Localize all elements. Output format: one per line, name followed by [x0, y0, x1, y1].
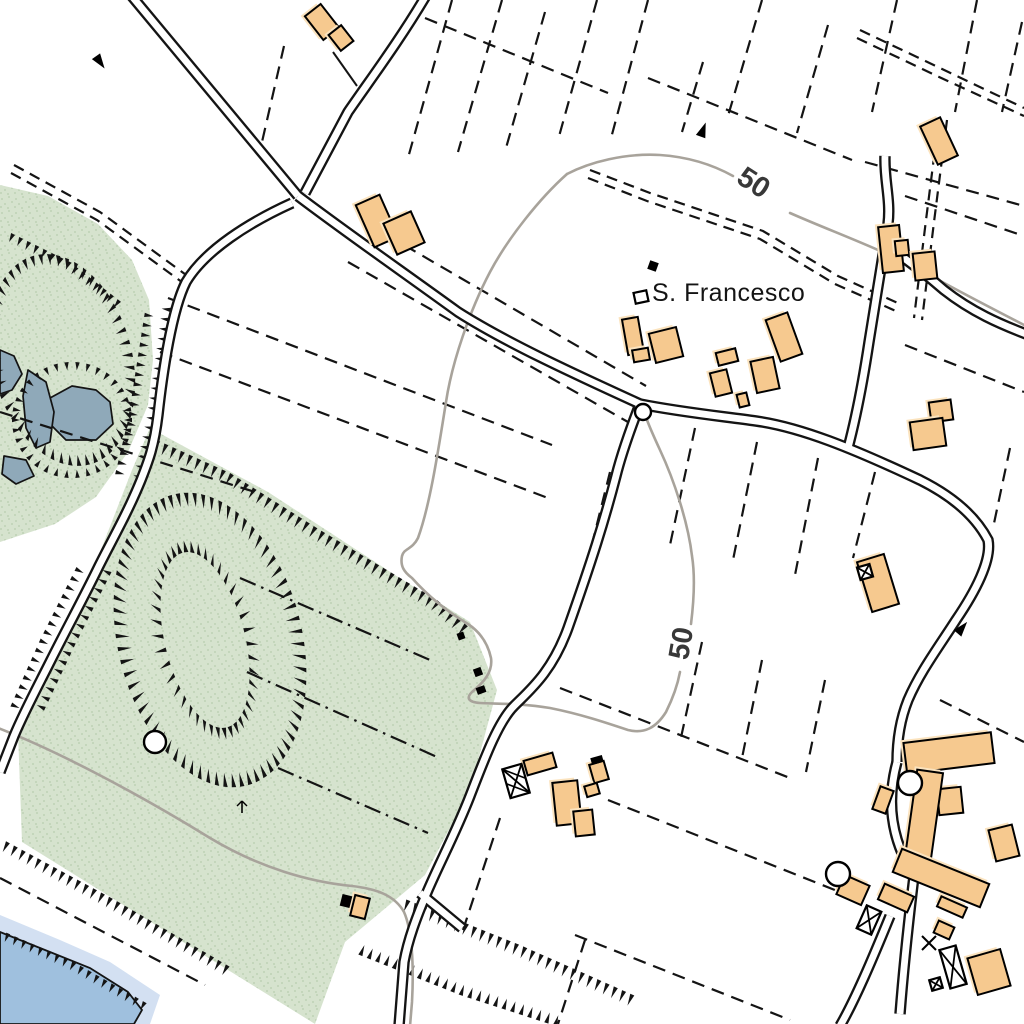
scarp-tick — [61, 594, 70, 600]
scarp-tick — [48, 621, 57, 627]
parcel-boundary-dashed — [993, 448, 1010, 528]
scarp-tick — [191, 946, 198, 957]
scarp-tick — [75, 567, 84, 573]
parcel-boundary-dashed — [733, 442, 757, 560]
parcel-boundary-dashed — [425, 18, 608, 93]
parcel-boundary-dashed — [262, 46, 284, 142]
building-footprint — [524, 753, 557, 776]
scarp-tick — [117, 460, 126, 464]
building-footprint — [584, 783, 600, 797]
scarp-tick — [425, 972, 431, 983]
scarp-tick — [586, 976, 593, 988]
circular-structure-symbol — [826, 862, 850, 886]
scarp-tick — [52, 612, 61, 618]
scarp-tick — [619, 990, 626, 1002]
topo-map-canvas — [0, 0, 1024, 1024]
scarp-tick — [367, 948, 373, 959]
scarp-tick — [504, 940, 510, 952]
scarp-tick — [476, 990, 481, 1001]
scarp-tick — [113, 901, 120, 912]
road-surface — [640, 404, 989, 762]
scarp-tick — [39, 638, 48, 644]
building-footprint — [913, 251, 938, 280]
scarp-tick — [627, 994, 634, 1006]
parcel-boundary-dashed — [905, 196, 1024, 236]
building-footprint — [573, 810, 595, 837]
scarp-tick — [520, 946, 527, 958]
scarp-tick — [57, 603, 66, 609]
scarp-tick — [479, 930, 485, 942]
scarp-tick — [519, 1004, 524, 1015]
fence-line — [333, 52, 357, 86]
scarp-tick — [19, 684, 28, 690]
scarp-tick — [121, 906, 128, 917]
building-footprint — [632, 348, 650, 363]
parcel-boundary-dashed — [463, 818, 500, 930]
scarp-tick — [545, 957, 552, 969]
scarp-tick — [35, 648, 44, 654]
scarp-tick — [168, 933, 175, 944]
circular-structure-symbol — [144, 731, 166, 753]
scarp-tick — [115, 470, 124, 474]
scarp-tick — [450, 982, 456, 993]
scarp-tick — [496, 936, 502, 948]
parcel-boundary-dashed — [742, 660, 762, 758]
building-footprint — [920, 117, 958, 164]
scarp-tick — [603, 983, 610, 995]
scarp-tick — [553, 961, 560, 973]
scarp-tick — [15, 693, 24, 699]
scarp-tick — [58, 871, 65, 882]
circular-structure-symbol — [635, 404, 651, 420]
scarp-tick — [611, 986, 618, 998]
parcel-boundary-dashed — [955, 0, 977, 112]
unpaved-track-line — [590, 170, 900, 304]
scarp-tick — [417, 968, 423, 979]
parcel-boundary-dashed — [558, 940, 585, 1024]
scarp-tick — [487, 933, 493, 945]
unpaved-track-line — [857, 38, 1024, 116]
scarp-tick — [74, 880, 81, 891]
scarp-tick — [493, 996, 498, 1007]
scarp-tick — [50, 867, 57, 878]
building-footprint — [737, 392, 750, 407]
parcel-boundary-dashed — [905, 345, 1024, 392]
building-footprint — [895, 240, 909, 256]
flow-direction-arrow-icon — [696, 121, 711, 139]
scarp-tick — [467, 988, 472, 999]
parcel-boundary-dashed — [610, 0, 648, 142]
scarp-tick — [11, 845, 18, 856]
parcel-boundary-dashed — [348, 262, 628, 422]
scarp-tick — [90, 888, 97, 899]
scarp-tick — [404, 900, 410, 912]
scarp-tick — [537, 954, 544, 966]
flow-direction-arrow-icon — [92, 53, 109, 71]
scarp-tick — [434, 975, 440, 986]
scarp-tick — [392, 958, 398, 969]
scarp-tick — [42, 863, 49, 874]
scarp-tick — [43, 630, 52, 636]
scarp-tick — [98, 892, 105, 903]
circular-structure-symbol — [898, 771, 922, 795]
parcel-boundary-dashed — [728, 0, 762, 116]
map-viewport: S. Francesco 50 50 — [0, 0, 1024, 1024]
parcel-boundary-dashed — [575, 935, 790, 1020]
small-black-building-symbol — [647, 260, 659, 272]
scarp-tick — [536, 1010, 541, 1021]
parcel-boundary-dashed — [797, 25, 828, 133]
scarp-tick — [513, 943, 519, 955]
scarp-tick — [578, 972, 585, 984]
scarp-tick — [10, 702, 19, 708]
scarp-tick — [3, 841, 10, 852]
scarp-tick — [27, 666, 36, 672]
scarp-tick — [152, 924, 159, 935]
scarp-tick — [34, 858, 41, 869]
building-footprint — [649, 327, 683, 363]
scarp-tick — [442, 978, 448, 989]
scarp-tick — [484, 993, 489, 1004]
scarp-tick — [529, 950, 536, 962]
scarp-tick — [82, 884, 89, 895]
scarp-tick — [31, 657, 40, 663]
parcel-boundary-dashed — [558, 0, 597, 140]
parcel-boundary-dashed — [458, 0, 502, 152]
scarp-tick — [66, 875, 73, 886]
scarp-tick — [375, 952, 381, 963]
building-footprint — [766, 312, 803, 361]
contour-line-50m — [567, 155, 733, 176]
scarp-tick — [175, 937, 182, 948]
scarp-tick — [501, 999, 506, 1010]
scarp-tick — [106, 897, 113, 908]
building-footprint — [910, 418, 947, 450]
scarp-tick — [137, 915, 144, 926]
contour-line-50m — [647, 420, 694, 624]
parcel-boundary-dashed — [608, 800, 855, 898]
unpaved-track-line — [860, 30, 1024, 108]
scarp-tick — [383, 955, 389, 966]
scarp-tick — [527, 1007, 532, 1018]
scarp-tick — [144, 919, 151, 930]
parcel-boundary-dashed — [168, 298, 552, 445]
parcel-boundary-dashed — [806, 680, 825, 772]
parcel-boundary-dashed — [648, 78, 852, 160]
scarp-tick — [160, 928, 167, 939]
road-surface — [420, 893, 462, 928]
parcel-boundary-dashed — [506, 12, 545, 148]
scarp-tick — [129, 910, 136, 921]
scarp-tick — [19, 850, 26, 861]
scarp-tick — [70, 576, 79, 582]
scarp-tick — [66, 585, 75, 591]
scarp-tick — [544, 1012, 549, 1023]
scarp-tick — [471, 926, 477, 938]
scarp-tick — [459, 985, 464, 996]
scarp-tick — [23, 675, 32, 681]
road-casing — [640, 404, 989, 762]
parcel-boundary-dashed — [680, 642, 702, 742]
parcel-boundary-dashed — [1002, 22, 1022, 112]
road-casing — [848, 156, 889, 448]
parcel-boundary-dashed — [795, 458, 818, 575]
outline-structure — [633, 290, 648, 303]
scarp-tick — [510, 1001, 515, 1012]
scarp-tick — [595, 979, 602, 991]
scarp-tick — [183, 942, 190, 953]
road-casing — [298, 196, 640, 404]
building-footprint — [857, 554, 899, 612]
scarp-tick — [562, 965, 569, 977]
parcel-boundary-dashed — [853, 472, 875, 558]
scarp-tick — [162, 308, 171, 312]
scarp-tick — [26, 854, 33, 865]
scarp-tick — [358, 945, 364, 956]
scarp-tick — [570, 968, 577, 980]
